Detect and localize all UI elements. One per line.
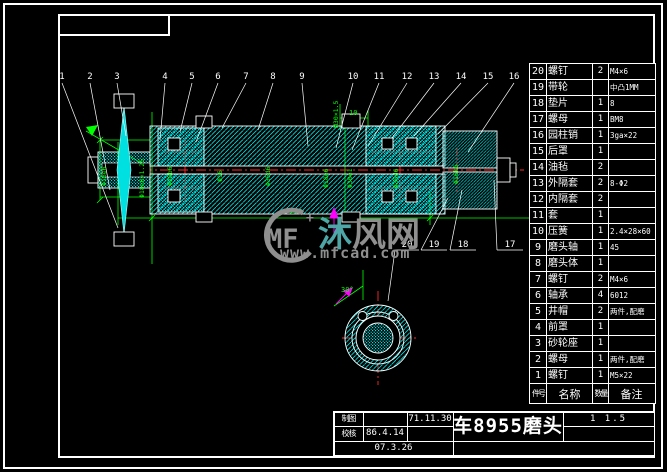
part-name: 螺钉 [547, 368, 593, 383]
table-row: 13外隔套28-Φ2 [530, 176, 655, 192]
part-qty: 1 [593, 240, 609, 255]
table-row: 20螺钉2M4×6 [530, 64, 655, 80]
dim-label: Φ28b6 [166, 166, 174, 186]
checked-by-label: 校核 [334, 426, 364, 442]
parts-list-table: 20螺钉2M4×619带轮中凸1MM18垫片1817螺母1BM816园柱销13g… [529, 63, 656, 404]
part-remark [609, 256, 654, 271]
balloon: 4 [162, 72, 167, 82]
dim-label: Φ18e6×1.25 [138, 159, 146, 198]
part-name: 砂轮座 [547, 336, 593, 351]
part-no: 13 [530, 176, 547, 191]
empty-cell [453, 441, 655, 456]
balloon: 6 [215, 72, 220, 82]
table-row: 7螺钉2M4×6 [530, 272, 655, 288]
part-qty: 1 [593, 128, 609, 143]
empty-cell [407, 426, 454, 442]
part-qty: 2 [593, 176, 609, 191]
part-remark: 6012 [609, 288, 654, 303]
table-row: 1螺钉1M5×22 [530, 368, 655, 384]
cad-canvas: 1 2 3 4 5 6 7 8 9 10 11 12 13 14 15 16 2… [0, 0, 667, 472]
balloon: 18 [458, 240, 469, 250]
balloon: 16 [509, 72, 520, 82]
parts-table-header: 件号名称数量备注 [530, 384, 655, 404]
screw-hole [389, 312, 398, 321]
balloon: 7 [243, 72, 248, 82]
part-remark: 两件,配磨 [609, 304, 654, 319]
part-no: 2 [530, 352, 547, 367]
part-qty: 2 [593, 64, 609, 79]
balloon: 14 [456, 72, 467, 82]
table-row: 4前罩1 [530, 320, 655, 336]
part-remark [609, 208, 654, 223]
part-remark: 备注 [609, 384, 654, 404]
part-remark: 中凸1MM [609, 80, 654, 95]
part-no: 7 [530, 272, 547, 287]
part-name: 后罩 [547, 144, 593, 159]
part-no: 1 [530, 368, 547, 383]
drawing-title: 车8955磨头 [453, 412, 564, 442]
part-name: 螺钉 [547, 64, 593, 79]
balloon: 3 [114, 72, 119, 82]
part-no: 11 [530, 208, 547, 223]
part-no: 3 [530, 336, 547, 351]
table-row: 15后罩1 [530, 144, 655, 160]
part-name: 套 [547, 208, 593, 223]
part-no: 18 [530, 96, 547, 111]
balloon: 9 [299, 72, 304, 82]
part-name: 前罩 [547, 320, 593, 335]
table-row: 11套1 [530, 208, 655, 224]
balloon: 12 [402, 72, 413, 82]
part-remark: 3ga×22 [609, 128, 654, 143]
part-name: 螺钉 [547, 272, 593, 287]
dim-label: Φ35d6 [264, 166, 272, 186]
part-remark: M4×6 [609, 272, 654, 287]
part-no: 6 [530, 288, 547, 303]
table-row: 12内隔套2 [530, 192, 655, 208]
part-name: 螺母 [547, 352, 593, 367]
wheel-end-view [345, 305, 411, 371]
part-no: 4 [530, 320, 547, 335]
part-qty: 2 [593, 304, 609, 319]
part-qty: 1 [593, 336, 609, 351]
table-row: 2螺母1两件,配磨 [530, 352, 655, 368]
dim-label: Φ16e6 [100, 166, 108, 186]
screw-hole [358, 312, 367, 321]
part-qty: 1 [593, 320, 609, 335]
part-remark: 两件,配磨 [609, 352, 654, 367]
part-qty: 1 [593, 208, 609, 223]
part-name: 名称 [547, 384, 593, 404]
bearing-left [158, 128, 204, 166]
dim-label: M30×1.5 [332, 101, 340, 128]
table-row: 19带轮中凸1MM [530, 80, 655, 96]
part-no: 20 [530, 64, 547, 79]
table-row: 9磨头轴145 [530, 240, 655, 256]
part-qty [593, 80, 609, 95]
table-row: 3砂轮座1 [530, 336, 655, 352]
part-no: 8 [530, 256, 547, 271]
part-name: 压簧 [547, 224, 593, 239]
part-no: 10 [530, 224, 547, 239]
part-name: 内隔套 [547, 192, 593, 207]
table-row: 10压簧12.4×28×60 [530, 224, 655, 240]
table-row: 16园柱销13ga×22 [530, 128, 655, 144]
part-name: 垫片 [547, 96, 593, 111]
part-qty: 1 [593, 144, 609, 159]
table-row: 14油毡2 [530, 160, 655, 176]
part-remark: 8 [609, 96, 654, 111]
part-qty: 2 [593, 192, 609, 207]
balloon: 5 [189, 72, 194, 82]
title-block: 制图 71.11.30 校核 86.4.14 07.3.26 车8955磨头 1… [333, 411, 655, 456]
part-no: 15 [530, 144, 547, 159]
part-remark: 2.4×28×60 [609, 224, 654, 239]
balloon: 11 [374, 72, 385, 82]
revision-date: 07.3.26 [334, 441, 454, 456]
part-name: 外隔套 [547, 176, 593, 191]
part-remark: M5×22 [609, 368, 654, 383]
part-qty: 2 [593, 160, 609, 175]
part-remark [609, 160, 654, 175]
balloon: 2 [87, 72, 92, 82]
part-name: 园柱销 [547, 128, 593, 143]
dim-label: Φ35d6 [392, 168, 400, 188]
empty-cell [363, 412, 408, 427]
part-no: 12 [530, 192, 547, 207]
balloon: 15 [483, 72, 494, 82]
part-name: 井帽 [547, 304, 593, 319]
part-qty: 1 [593, 96, 609, 111]
part-name: 油毡 [547, 160, 593, 175]
dim-label: Φ16k6 [452, 164, 460, 184]
table-row: 5井帽2两件,配磨 [530, 304, 655, 320]
part-name: 磨头轴 [547, 240, 593, 255]
part-remark [609, 336, 654, 351]
balloon: 1 [59, 72, 64, 82]
part-name: 螺母 [547, 112, 593, 127]
part-no: 9 [530, 240, 547, 255]
part-qty: 1 [593, 256, 609, 271]
table-row: 8磨头体1 [530, 256, 655, 272]
datum-arrow [86, 125, 98, 136]
dim-label: Φ30e1 [346, 168, 354, 188]
part-remark: 45 [609, 240, 654, 255]
dim-label: Φ16 [216, 170, 224, 182]
watermark-url: www.mfcad.com [280, 244, 410, 262]
part-qty: 1 [593, 112, 609, 127]
balloon: 13 [429, 72, 440, 82]
drawn-by-label: 制图 [334, 412, 364, 427]
part-no: 19 [530, 80, 547, 95]
balloon: 10 [348, 72, 359, 82]
part-no: 16 [530, 128, 547, 143]
part-name: 带轮 [547, 80, 593, 95]
table-row: 17螺母1BM8 [530, 112, 655, 128]
part-remark: M4×6 [609, 64, 654, 79]
part-remark [609, 192, 654, 207]
part-name: 轴承 [547, 288, 593, 303]
drawn-date: 71.11.30 [407, 412, 454, 427]
table-row: 18垫片18 [530, 96, 655, 112]
part-no: 件号 [530, 384, 547, 404]
checked-date: 86.4.14 [363, 426, 408, 442]
part-qty: 1 [593, 352, 609, 367]
watermark-sparkle: + [306, 211, 314, 226]
part-remark [609, 144, 654, 159]
empty-cell [563, 426, 655, 442]
drawing-scale: 1 1.5 [563, 412, 655, 427]
part-qty: 4 [593, 288, 609, 303]
balloon: 17 [505, 240, 516, 250]
table-row: 6轴承46012 [530, 288, 655, 304]
part-remark [609, 320, 654, 335]
dim-angle: 30° [341, 286, 354, 294]
dim-label: Φ18e6 [322, 168, 330, 188]
dim-small: 10 [349, 109, 357, 117]
part-qty: 2 [593, 272, 609, 287]
part-qty: 1 [593, 224, 609, 239]
part-no: 17 [530, 112, 547, 127]
part-no: 14 [530, 160, 547, 175]
balloon: 19 [429, 240, 440, 250]
balloon: 8 [270, 72, 275, 82]
part-qty: 1 [593, 368, 609, 383]
part-remark: 8-Φ2 [609, 176, 654, 191]
part-qty: 数量 [593, 384, 609, 404]
part-remark: BM8 [609, 112, 654, 127]
part-no: 5 [530, 304, 547, 319]
part-name: 磨头体 [547, 256, 593, 271]
